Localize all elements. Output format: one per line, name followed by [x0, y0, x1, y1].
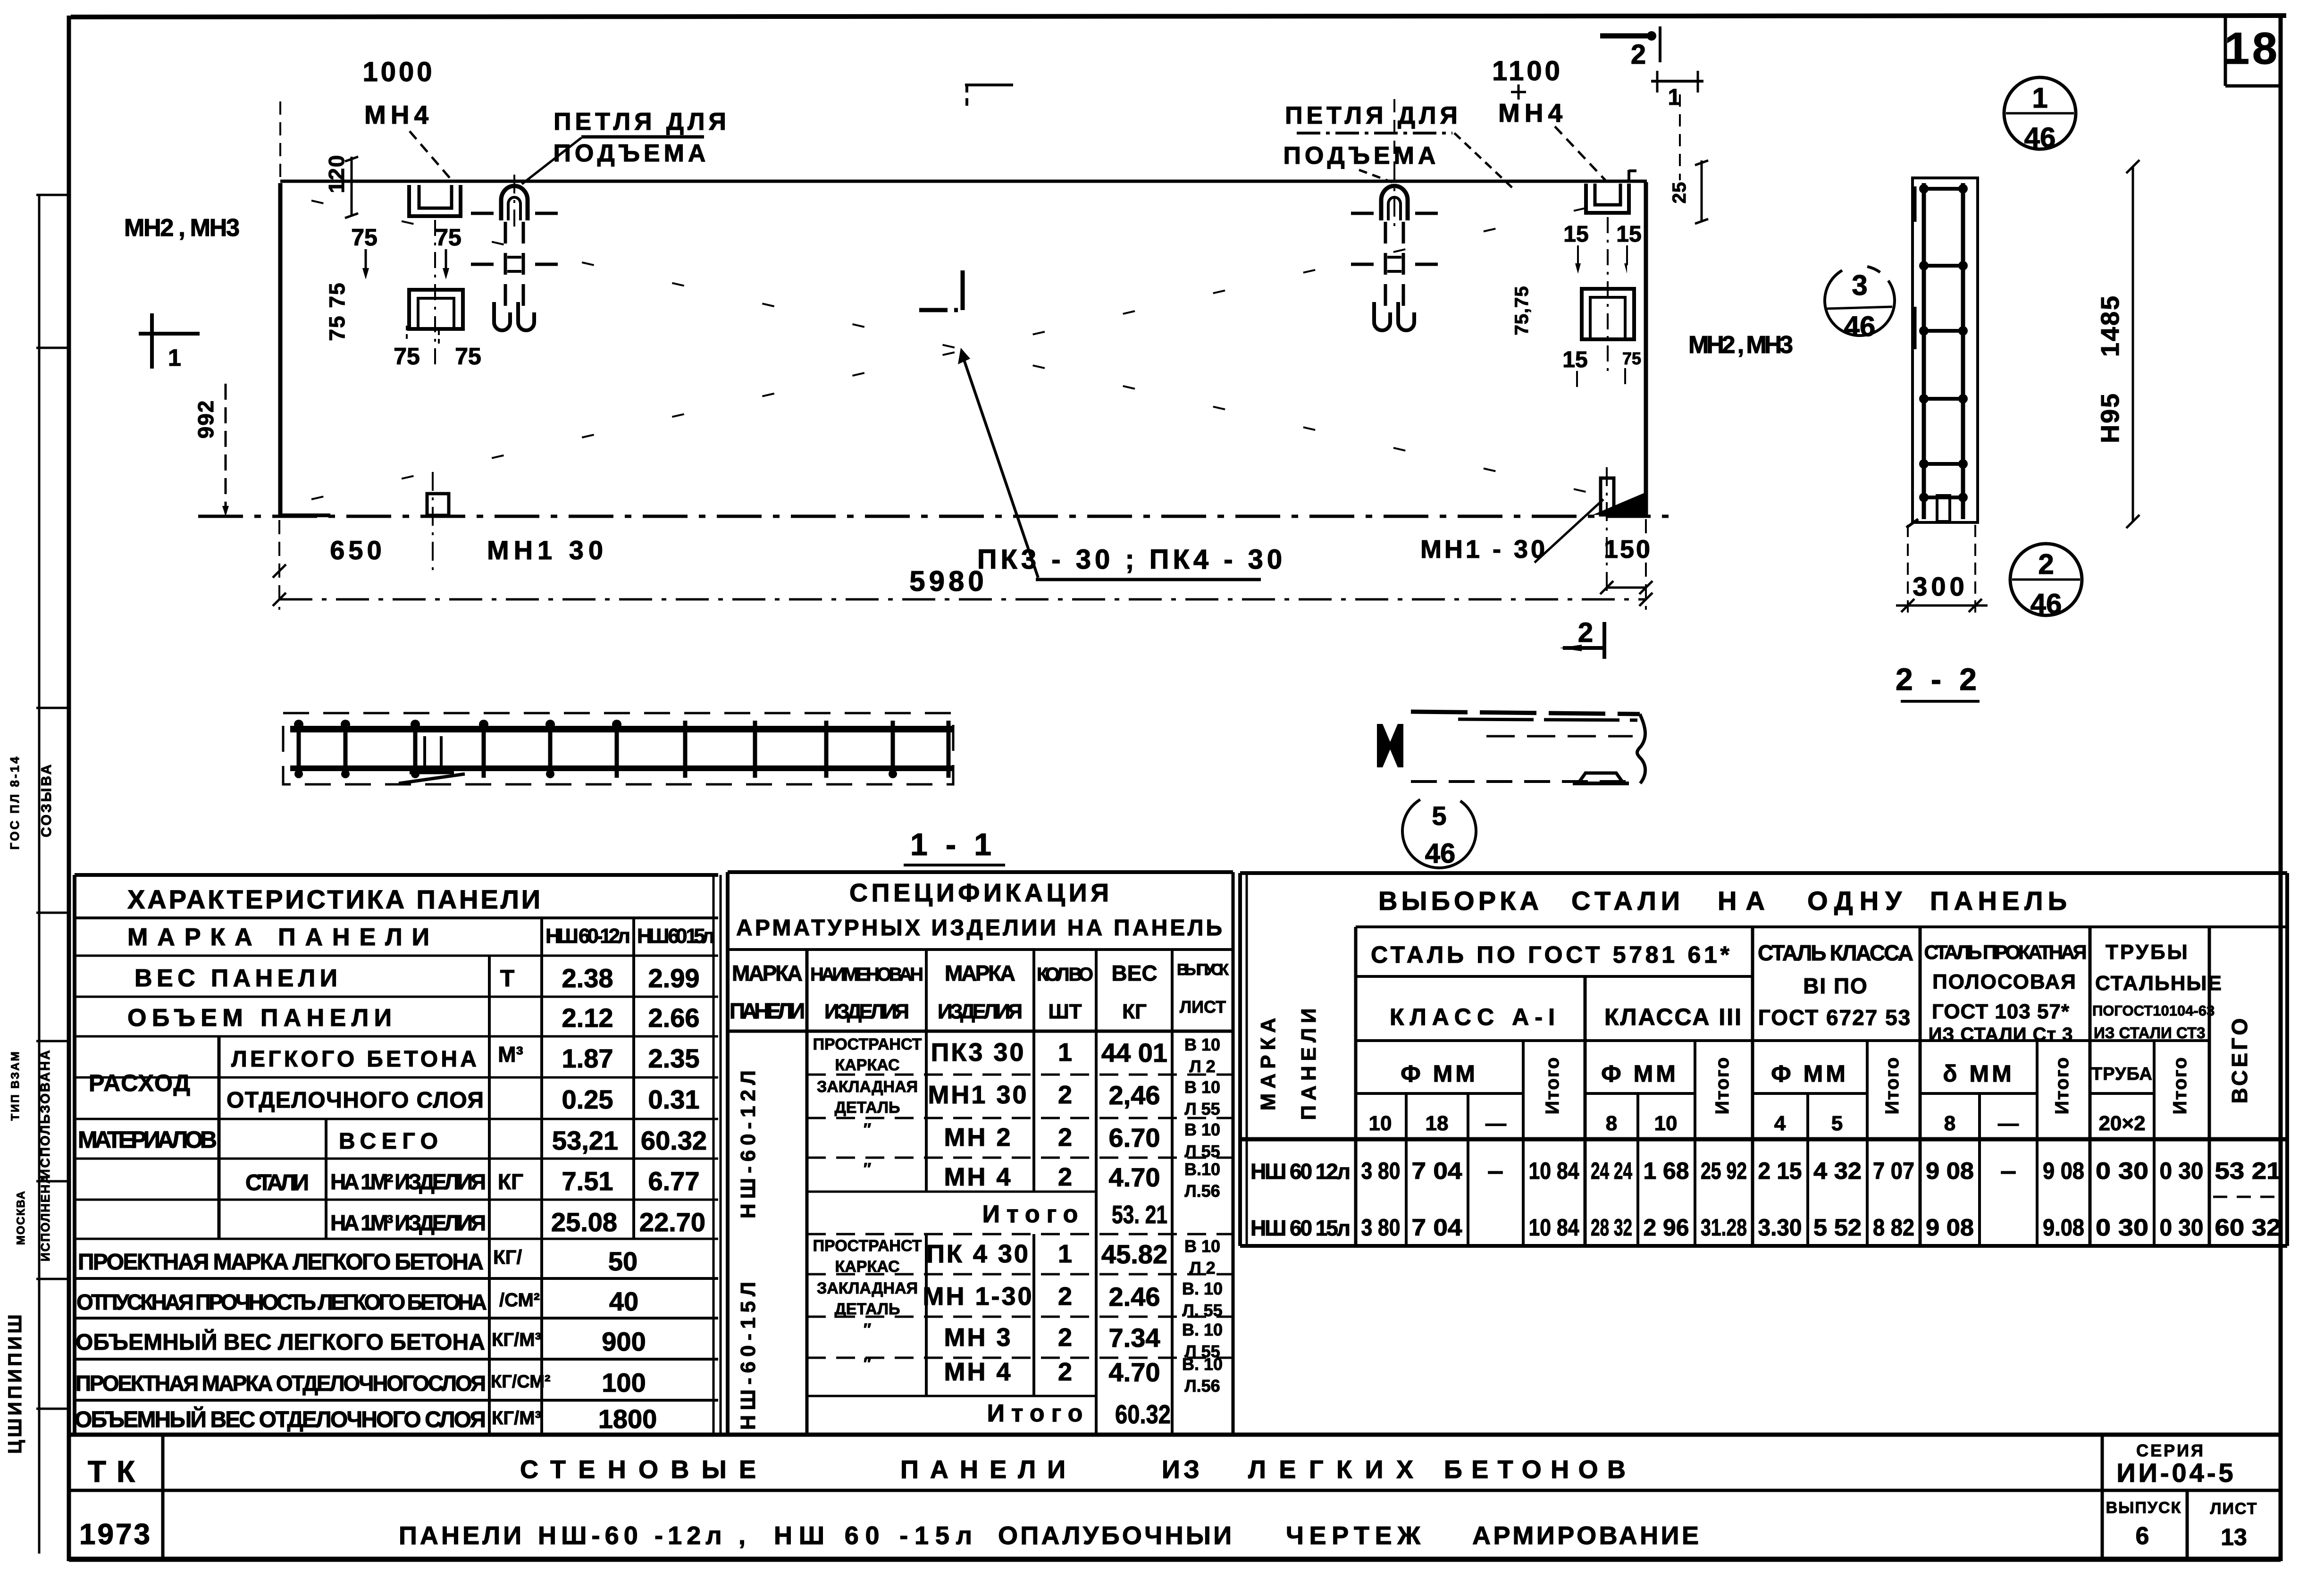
- svg-text:Итого: Итого: [2170, 1057, 2190, 1115]
- svg-text:ПРОСТРАНСТ: ПРОСТРАНСТ: [813, 1035, 922, 1053]
- svg-text:75 75: 75 75: [325, 282, 349, 341]
- svg-text:10 84: 10 84: [1529, 1158, 1579, 1184]
- svg-text:Итого: Итого: [1712, 1057, 1733, 1115]
- svg-text:Т: Т: [500, 965, 515, 992]
- svg-text:25 92: 25 92: [1701, 1158, 1747, 1184]
- svg-text:В. 10: В. 10: [1182, 1279, 1223, 1298]
- svg-text:ГОСТ 103 57*: ГОСТ 103 57*: [1932, 1000, 2070, 1023]
- svg-text:НШ-60-12Л: НШ-60-12Л: [737, 1066, 760, 1219]
- svg-text:ПРОСТРАНСТ: ПРОСТРАНСТ: [813, 1237, 922, 1255]
- svg-text:3.30: 3.30: [1758, 1214, 1802, 1241]
- svg-text:8: 8: [1606, 1112, 1617, 1135]
- svg-text:15: 15: [1563, 222, 1588, 247]
- svg-text:1 68: 1 68: [1644, 1158, 1689, 1184]
- svg-text:″: ″: [864, 1355, 871, 1373]
- svg-text:75: 75: [455, 343, 481, 370]
- svg-text:7 04: 7 04: [1412, 1214, 1462, 1241]
- svg-text:60.32: 60.32: [641, 1126, 707, 1155]
- svg-text:М³: М³: [498, 1042, 523, 1067]
- svg-text:В 10: В 10: [1184, 1035, 1220, 1054]
- svg-text:НШ 60 15л: НШ 60 15л: [637, 925, 715, 948]
- svg-text:10: 10: [1654, 1112, 1678, 1135]
- svg-text:КГ/СМ²: КГ/СМ²: [491, 1372, 551, 1392]
- svg-text:2.66: 2.66: [648, 1003, 700, 1033]
- svg-text:ПРОЕКТНАЯ МАРКА ЛЕГКОГО БЕТОН: ПРОЕКТНАЯ МАРКА ЛЕГКОГО БЕТОНА: [78, 1250, 484, 1275]
- svg-text:МН2 , МН3: МН2 , МН3: [124, 214, 240, 242]
- svg-text:Л 2: Л 2: [1189, 1057, 1215, 1076]
- svg-text:ПК3 30: ПК3 30: [931, 1038, 1026, 1067]
- svg-text:3 80: 3 80: [1361, 1158, 1401, 1184]
- svg-text:Л.56: Л.56: [1184, 1376, 1220, 1395]
- svg-text:ПРОЕКТНАЯ МАРКА ОТДЕЛОЧНОГОСЛО: ПРОЕКТНАЯ МАРКА ОТДЕЛОЧНОГОСЛОЯ: [76, 1371, 486, 1395]
- svg-text:МОСКВА: МОСКВА: [15, 1190, 27, 1245]
- svg-text:50: 50: [608, 1246, 638, 1276]
- svg-text:2,46: 2,46: [1109, 1080, 1160, 1110]
- svg-text:7.51: 7.51: [562, 1166, 613, 1196]
- svg-text:МН4: МН4: [1498, 98, 1567, 127]
- svg-text:1100: 1100: [1492, 56, 1563, 86]
- svg-text:46: 46: [1844, 311, 1876, 342]
- svg-text:ТРУБЫ: ТРУБЫ: [2106, 941, 2190, 964]
- svg-text:120: 120: [324, 154, 349, 193]
- svg-text:КГ: КГ: [498, 1169, 523, 1194]
- svg-text:1 - 1: 1 - 1: [910, 827, 996, 862]
- svg-text:Итого: Итого: [987, 1400, 1090, 1427]
- svg-text:КАРКАС: КАРКАС: [835, 1056, 900, 1074]
- svg-text:АРМИРОВАНИЕ: АРМИРОВАНИЕ: [1472, 1522, 1699, 1550]
- svg-text:СТАЛИ: СТАЛИ: [245, 1170, 309, 1195]
- svg-text:46: 46: [2030, 588, 2062, 620]
- svg-text:ДЕТАЛЬ: ДЕТАЛЬ: [835, 1099, 900, 1117]
- svg-text:Н95: Н95: [2096, 392, 2124, 443]
- svg-text:2.12: 2.12: [562, 1003, 613, 1033]
- svg-text:МН 4: МН 4: [944, 1358, 1012, 1386]
- svg-text:–: –: [1487, 1158, 1503, 1184]
- svg-text:25.08: 25.08: [551, 1207, 617, 1237]
- svg-text:60.32: 60.32: [1115, 1399, 1171, 1429]
- svg-text:МН 1-30: МН 1-30: [923, 1282, 1033, 1311]
- svg-text:0.25: 0.25: [562, 1084, 613, 1114]
- svg-text:31.28: 31.28: [1701, 1214, 1747, 1241]
- svg-text:1: 1: [1058, 1240, 1072, 1268]
- svg-text:ТК: ТК: [88, 1454, 145, 1488]
- svg-text:3: 3: [1852, 269, 1867, 301]
- svg-text:Ф ММ: Ф ММ: [1601, 1060, 1678, 1087]
- svg-text:2: 2: [1058, 1282, 1072, 1311]
- svg-text:22.70: 22.70: [639, 1207, 705, 1237]
- svg-text:9 08: 9 08: [1926, 1158, 1974, 1184]
- svg-text:ПК3 - 30 ; ПК4 - 30: ПК3 - 30 ; ПК4 - 30: [977, 544, 1286, 575]
- svg-text:ВСЕГО: ВСЕГО: [2227, 1016, 2252, 1104]
- svg-text:ВЫБОРКА: ВЫБОРКА: [1378, 886, 1539, 916]
- svg-text:28 32: 28 32: [1591, 1214, 1632, 1241]
- svg-text:ИСПОЛЬЗОВАНА: ИСПОЛЬЗОВАНА: [38, 1049, 52, 1178]
- svg-text:ПАНЕЛИ: ПАНЕЛИ: [1297, 1003, 1320, 1120]
- svg-text:—: —: [1998, 1112, 2019, 1135]
- svg-text:НШ 60 12л: НШ 60 12л: [1250, 1159, 1351, 1184]
- svg-text:″: ″: [864, 1160, 871, 1178]
- svg-text:ВЫПУСК: ВЫПУСК: [2106, 1499, 2182, 1517]
- svg-text:КЛАССА III: КЛАССА III: [1604, 1004, 1741, 1030]
- svg-text:ЗАКЛАДНАЯ: ЗАКЛАДНАЯ: [817, 1279, 918, 1297]
- svg-text:СТАЛЬНЫЕ: СТАЛЬНЫЕ: [2095, 972, 2223, 995]
- svg-text:″: ″: [864, 1120, 871, 1138]
- svg-text:ЗАКЛАДНАЯ: ЗАКЛАДНАЯ: [817, 1078, 918, 1096]
- svg-text:КГ: КГ: [1122, 1000, 1147, 1023]
- svg-text:ПК 4 30: ПК 4 30: [926, 1240, 1030, 1268]
- svg-text:45.82: 45.82: [1101, 1239, 1167, 1269]
- svg-text:13: 13: [2221, 1524, 2247, 1550]
- svg-text:5: 5: [1831, 1112, 1843, 1135]
- svg-text:44 01: 44 01: [1101, 1038, 1167, 1068]
- svg-text:ПАНЕЛИ: ПАНЕЛИ: [730, 999, 805, 1023]
- svg-text:ЛИСТ: ЛИСТ: [1180, 997, 1226, 1017]
- svg-text:МН 3: МН 3: [944, 1323, 1012, 1352]
- svg-text:ВЕС: ВЕС: [1111, 961, 1157, 985]
- svg-text:6.77: 6.77: [648, 1166, 700, 1196]
- svg-text:40: 40: [609, 1286, 638, 1316]
- svg-text:2: 2: [1058, 1358, 1072, 1386]
- svg-text:53 21: 53 21: [2215, 1158, 2282, 1184]
- svg-text:НШ 60 15л: НШ 60 15л: [1250, 1216, 1351, 1240]
- svg-text:900: 900: [602, 1327, 646, 1356]
- svg-text:ИЗДЕЛИЯ: ИЗДЕЛИЯ: [938, 1000, 1023, 1023]
- svg-text:ИИ-04-5: ИИ-04-5: [2116, 1458, 2236, 1488]
- svg-text:0 30: 0 30: [2096, 1214, 2148, 1241]
- svg-text:СТАЛЬ ПРОКАТНАЯ: СТАЛЬ ПРОКАТНАЯ: [1924, 941, 2087, 963]
- svg-text:Ф ММ: Ф ММ: [1401, 1060, 1478, 1087]
- svg-text:1.87: 1.87: [562, 1043, 613, 1073]
- svg-text:9 08: 9 08: [1926, 1214, 1974, 1241]
- svg-text:6.70: 6.70: [1109, 1123, 1160, 1152]
- svg-text:Ф ММ: Ф ММ: [1771, 1060, 1848, 1087]
- svg-text:В.10: В.10: [1184, 1160, 1220, 1179]
- svg-text:2: 2: [1578, 617, 1593, 648]
- svg-text:В. 10: В. 10: [1182, 1320, 1223, 1339]
- svg-text:75: 75: [394, 343, 420, 370]
- svg-text:ВЫПУСК: ВЫПУСК: [1177, 961, 1229, 979]
- svg-text:2.35: 2.35: [648, 1043, 700, 1073]
- svg-text:МАРКА: МАРКА: [945, 961, 1015, 985]
- svg-text:ПЕТЛЯ ДЛЯ: ПЕТЛЯ ДЛЯ: [554, 108, 730, 135]
- svg-text:2 15: 2 15: [1758, 1158, 1802, 1184]
- svg-text:МН4: МН4: [364, 100, 433, 129]
- svg-text:1: 1: [1058, 1038, 1072, 1067]
- svg-text:ПЕТЛЯ ДЛЯ: ПЕТЛЯ ДЛЯ: [1285, 102, 1461, 129]
- svg-text:20×2: 20×2: [2098, 1112, 2145, 1135]
- svg-text:МАТЕРИАЛОВ: МАТЕРИАЛОВ: [78, 1126, 217, 1153]
- svg-text:КГ/М³: КГ/М³: [492, 1329, 541, 1350]
- svg-text:9 08: 9 08: [2043, 1158, 2084, 1184]
- svg-text:–: –: [2000, 1158, 2016, 1184]
- svg-text:МН2 , МН3: МН2 , МН3: [1688, 331, 1793, 359]
- svg-text:75: 75: [1622, 349, 1641, 368]
- svg-text:НШ 60-12л: НШ 60-12л: [545, 925, 630, 948]
- svg-text:4.70: 4.70: [1109, 1357, 1160, 1387]
- svg-text:15: 15: [1562, 347, 1587, 372]
- svg-text:2: 2: [1058, 1081, 1072, 1109]
- svg-text:2: 2: [1058, 1163, 1072, 1191]
- svg-text:В. 10: В. 10: [1182, 1354, 1223, 1374]
- svg-text:″: ″: [864, 1320, 871, 1338]
- svg-text:ГОС ПЛ 8-14: ГОС ПЛ 8-14: [8, 755, 22, 850]
- svg-text:0 30: 0 30: [2160, 1158, 2204, 1184]
- svg-text:150: 150: [1604, 535, 1652, 563]
- svg-text:КГ/: КГ/: [493, 1246, 522, 1268]
- svg-text:ПОДЪЕМА: ПОДЪЕМА: [1284, 142, 1440, 169]
- svg-text:Итого: Итого: [1882, 1057, 1903, 1115]
- svg-text:Л. 55: Л. 55: [1182, 1301, 1222, 1320]
- svg-text:ШТ: ШТ: [1048, 1000, 1082, 1023]
- svg-text:1485: 1485: [2096, 294, 2124, 357]
- svg-text:1000: 1000: [362, 57, 435, 87]
- svg-text:300: 300: [1913, 572, 1968, 601]
- svg-text:Л 2: Л 2: [1189, 1258, 1215, 1278]
- svg-text:53,21: 53,21: [552, 1126, 618, 1155]
- svg-text:Л 55: Л 55: [1184, 1142, 1220, 1161]
- svg-text:1: 1: [2032, 82, 2047, 114]
- svg-text:3 80: 3 80: [1361, 1214, 1401, 1241]
- svg-text:ВСЕГО: ВСЕГО: [339, 1129, 438, 1154]
- svg-text:0 30: 0 30: [2160, 1214, 2204, 1241]
- svg-text:ПОЛОСОВАЯ: ПОЛОСОВАЯ: [1932, 970, 2077, 993]
- svg-text:2: 2: [1631, 39, 1646, 70]
- svg-text:2: 2: [2038, 548, 2054, 580]
- svg-text:МН 2: МН 2: [944, 1123, 1012, 1152]
- svg-text:75,75: 75,75: [1511, 286, 1532, 335]
- svg-text:ПОГОСТ10104-63: ПОГОСТ10104-63: [2092, 1002, 2215, 1019]
- svg-text:/СМ²: /СМ²: [499, 1290, 540, 1311]
- svg-text:δ ММ: δ ММ: [1943, 1060, 2014, 1087]
- svg-text:75: 75: [351, 224, 378, 251]
- svg-text:5 52: 5 52: [1813, 1214, 1862, 1241]
- svg-text:4: 4: [1774, 1112, 1786, 1135]
- svg-text:ОТПУСКНАЯ ПРОЧНОСТЬ ЛЕГКОГО Б: ОТПУСКНАЯ ПРОЧНОСТЬ ЛЕГКОГО БЕТОНА: [76, 1290, 487, 1314]
- svg-text:4 32: 4 32: [1813, 1158, 1862, 1184]
- svg-text:СОЗЫВА: СОЗЫВА: [39, 763, 54, 837]
- svg-text:5980: 5980: [909, 565, 987, 597]
- svg-text:10 84: 10 84: [1529, 1214, 1579, 1241]
- svg-text:2.46: 2.46: [1109, 1282, 1160, 1311]
- svg-text:В 10: В 10: [1184, 1236, 1220, 1256]
- svg-text:ПОДЪЕМА: ПОДЪЕМА: [554, 140, 710, 167]
- svg-text:8: 8: [1944, 1112, 1955, 1135]
- svg-text:8 82: 8 82: [1873, 1214, 1914, 1241]
- svg-text:53. 21: 53. 21: [1112, 1201, 1167, 1229]
- svg-text:НШ-60-15Л: НШ-60-15Л: [737, 1277, 760, 1430]
- svg-text:2 - 2: 2 - 2: [1896, 662, 1981, 697]
- svg-text:ТРУБА: ТРУБА: [2091, 1064, 2153, 1084]
- svg-text:ОПАЛУБОЧНЫИ: ОПАЛУБОЧНЫИ: [998, 1522, 1232, 1550]
- svg-text:ОТДЕЛОЧНОГО СЛОЯ: ОТДЕЛОЧНОГО СЛОЯ: [227, 1088, 484, 1113]
- svg-text:НАИМЕНОВАН: НАИМЕНОВАН: [810, 964, 923, 985]
- svg-text:НШ 60 -15л: НШ 60 -15л: [774, 1522, 972, 1550]
- svg-text:МАРКА: МАРКА: [1257, 1013, 1280, 1110]
- svg-text:1: 1: [168, 345, 181, 371]
- svg-text:ЛИСТ: ЛИСТ: [2210, 1500, 2258, 1518]
- svg-text:2.99: 2.99: [648, 963, 700, 993]
- svg-text:ВI ПО: ВI ПО: [1803, 974, 1868, 998]
- svg-text:1800: 1800: [598, 1404, 657, 1434]
- svg-text:75: 75: [435, 224, 461, 251]
- svg-text:Итого: Итого: [2052, 1057, 2072, 1115]
- svg-text:СТАЛИ: СТАЛИ: [1571, 886, 1680, 916]
- svg-text:7.34: 7.34: [1109, 1323, 1160, 1353]
- svg-text:5: 5: [1432, 801, 1446, 831]
- svg-text:650: 650: [330, 535, 385, 565]
- svg-text:7 04: 7 04: [1412, 1158, 1462, 1184]
- svg-text:0.31: 0.31: [648, 1084, 700, 1114]
- svg-text:60 32: 60 32: [2215, 1214, 2282, 1241]
- svg-text:2: 2: [1058, 1323, 1072, 1352]
- svg-text:РАСХОД: РАСХОД: [89, 1070, 190, 1096]
- svg-text:992: 992: [193, 400, 218, 439]
- svg-text:МАРКА: МАРКА: [732, 961, 803, 985]
- svg-text:1973: 1973: [79, 1518, 152, 1551]
- svg-text:2.38: 2.38: [562, 963, 613, 993]
- svg-text:СПЕЦИФИКАЦИЯ: СПЕЦИФИКАЦИЯ: [849, 879, 1109, 907]
- svg-text:МН1 30: МН1 30: [487, 535, 608, 565]
- svg-text:0 30: 0 30: [2096, 1158, 2148, 1184]
- svg-text:НА 1М² ИЗДЕЛИЯ: НА 1М² ИЗДЕЛИЯ: [330, 1169, 486, 1194]
- svg-text:КГ/М³: КГ/М³: [492, 1408, 541, 1429]
- svg-text:9.08: 9.08: [2043, 1214, 2084, 1241]
- svg-text:25: 25: [1669, 182, 1690, 204]
- svg-text:10: 10: [1369, 1112, 1392, 1135]
- svg-text:МН1 30: МН1 30: [928, 1081, 1028, 1109]
- svg-text:В 10: В 10: [1184, 1077, 1220, 1097]
- svg-text:ГОСТ 6727 53: ГОСТ 6727 53: [1758, 1005, 1911, 1030]
- svg-text:18: 18: [2224, 24, 2280, 74]
- svg-text:24 24: 24 24: [1591, 1158, 1632, 1184]
- svg-text:КОЛ ВО: КОЛ ВО: [1037, 964, 1093, 985]
- svg-text:ВЕС ПАНЕЛИ: ВЕС ПАНЕЛИ: [134, 965, 337, 992]
- svg-text:СЕРИЯ: СЕРИЯ: [2136, 1441, 2205, 1460]
- svg-text:4.70: 4.70: [1109, 1162, 1160, 1192]
- svg-text:Итого: Итого: [1542, 1057, 1563, 1115]
- svg-text:ИСПОЛНЕНА: ИСПОЛНЕНА: [38, 1174, 52, 1261]
- svg-text:Итого: Итого: [982, 1201, 1085, 1228]
- svg-text:ТИП ВЗАМ: ТИП ВЗАМ: [9, 1050, 22, 1120]
- svg-text:НА 1М³ ИЗДЕЛИЯ: НА 1М³ ИЗДЕЛИЯ: [330, 1211, 486, 1235]
- svg-text:ИЗ СТАЛИ Ст 3: ИЗ СТАЛИ Ст 3: [1929, 1024, 2073, 1045]
- svg-text:46: 46: [2024, 122, 2056, 153]
- svg-text:—: —: [1485, 1112, 1506, 1135]
- svg-text:1: 1: [1668, 85, 1681, 110]
- svg-text:Л 55: Л 55: [1184, 1099, 1220, 1118]
- svg-text:ОБЪЕМНЫЙ ВЕС ОТДЕЛОЧНОГО СЛО: ОБЪЕМНЫЙ ВЕС ОТДЕЛОЧНОГО СЛОЯ: [75, 1406, 486, 1432]
- svg-text:КАРКАС: КАРКАС: [835, 1258, 900, 1276]
- svg-text:ЦШИПИПИШ: ЦШИПИПИШ: [5, 1311, 25, 1454]
- svg-text:Л.56: Л.56: [1184, 1181, 1220, 1201]
- svg-text:ИЗДЕЛИЯ: ИЗДЕЛИЯ: [824, 1000, 909, 1023]
- svg-text:ИЗ СТАЛИ СТ3: ИЗ СТАЛИ СТ3: [2094, 1024, 2205, 1042]
- svg-text:6: 6: [2136, 1522, 2149, 1550]
- svg-text:МН1 - 30: МН1 - 30: [1420, 535, 1548, 563]
- svg-text:46: 46: [1425, 838, 1456, 869]
- svg-text:МН 4: МН 4: [944, 1163, 1012, 1191]
- svg-text:2 96: 2 96: [1644, 1214, 1689, 1241]
- svg-text:18: 18: [1426, 1112, 1449, 1135]
- svg-text:СТАЛЬ КЛАССА: СТАЛЬ КЛАССА: [1758, 941, 1913, 965]
- svg-text:15: 15: [1616, 222, 1641, 247]
- svg-text:В 10: В 10: [1184, 1120, 1220, 1139]
- svg-text:ОБЪЕМНЫЙ ВЕС ЛЕГКОГО БЕТОНА: ОБЪЕМНЫЙ ВЕС ЛЕГКОГО БЕТОНА: [76, 1329, 485, 1355]
- svg-text:7 07: 7 07: [1873, 1158, 1914, 1184]
- svg-text:ДЕТАЛЬ: ДЕТАЛЬ: [835, 1300, 900, 1318]
- svg-text:2: 2: [1058, 1123, 1072, 1152]
- svg-text:100: 100: [602, 1368, 646, 1397]
